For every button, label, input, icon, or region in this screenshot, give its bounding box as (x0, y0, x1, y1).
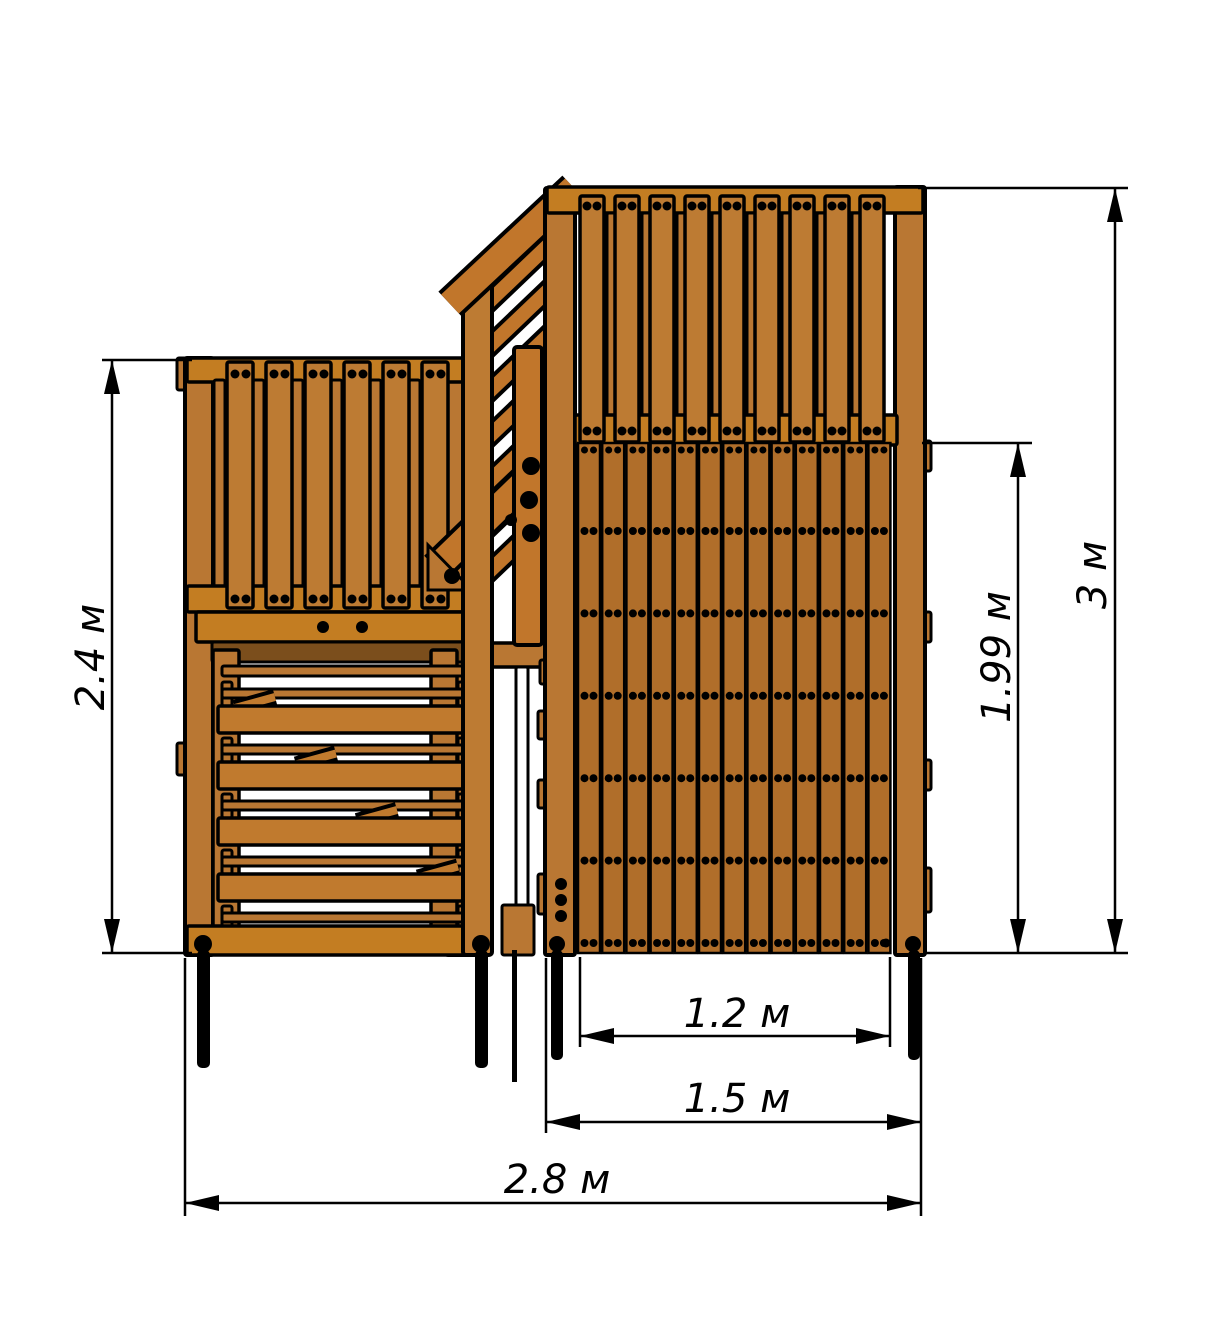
elevation-drawing: 2.4 м 3 м 1.99 м 1.2 м 1.5 м 2.8 м (0, 0, 1218, 1320)
dim-label-total-height: 3 м (1070, 541, 1116, 609)
dim-label-right-tower-width: 1.5 м (684, 1076, 791, 1122)
dim-label-wall-inner-width: 1.2 м (684, 991, 791, 1037)
left-tower (177, 358, 490, 955)
dim-label-wall-panel-height: 1.99 м (974, 591, 1020, 723)
dim-label-total-width: 2.8 м (504, 1157, 611, 1203)
dim-label-left-tower-height: 2.4 м (68, 604, 114, 711)
drawing-canvas: 2.4 м 3 м 1.99 м 1.2 м 1.5 м 2.8 м (0, 0, 1218, 1320)
right-tower (538, 187, 931, 955)
ground-anchors (194, 935, 921, 1082)
